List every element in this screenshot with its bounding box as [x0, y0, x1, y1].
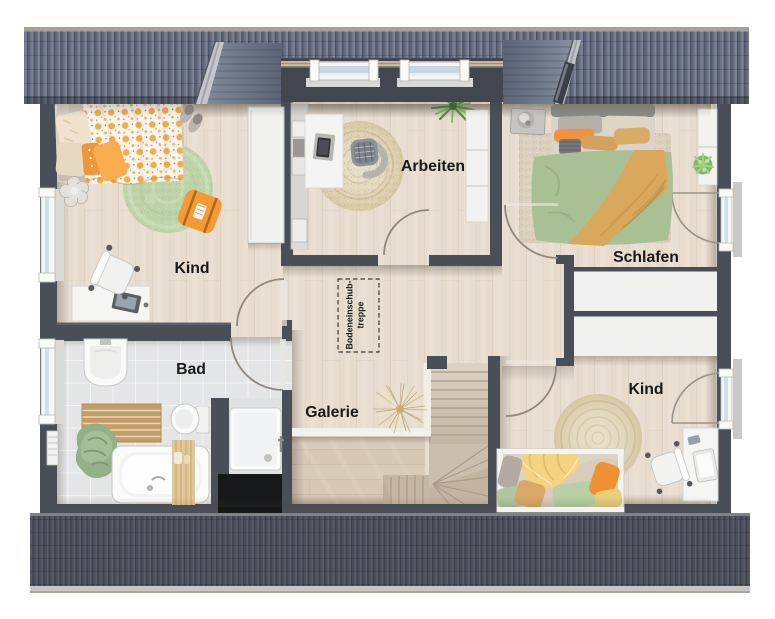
svg-text:Bodeneinschub-: Bodeneinschub-: [345, 281, 355, 350]
svg-text:Kind: Kind: [628, 381, 663, 398]
svg-text:Arbeiten: Arbeiten: [401, 158, 465, 175]
svg-text:Galerie: Galerie: [305, 404, 359, 421]
svg-text:treppe: treppe: [356, 302, 366, 329]
svg-text:Kind: Kind: [174, 260, 209, 277]
svg-text:Bad: Bad: [176, 361, 206, 378]
svg-text:Schlafen: Schlafen: [613, 249, 679, 266]
